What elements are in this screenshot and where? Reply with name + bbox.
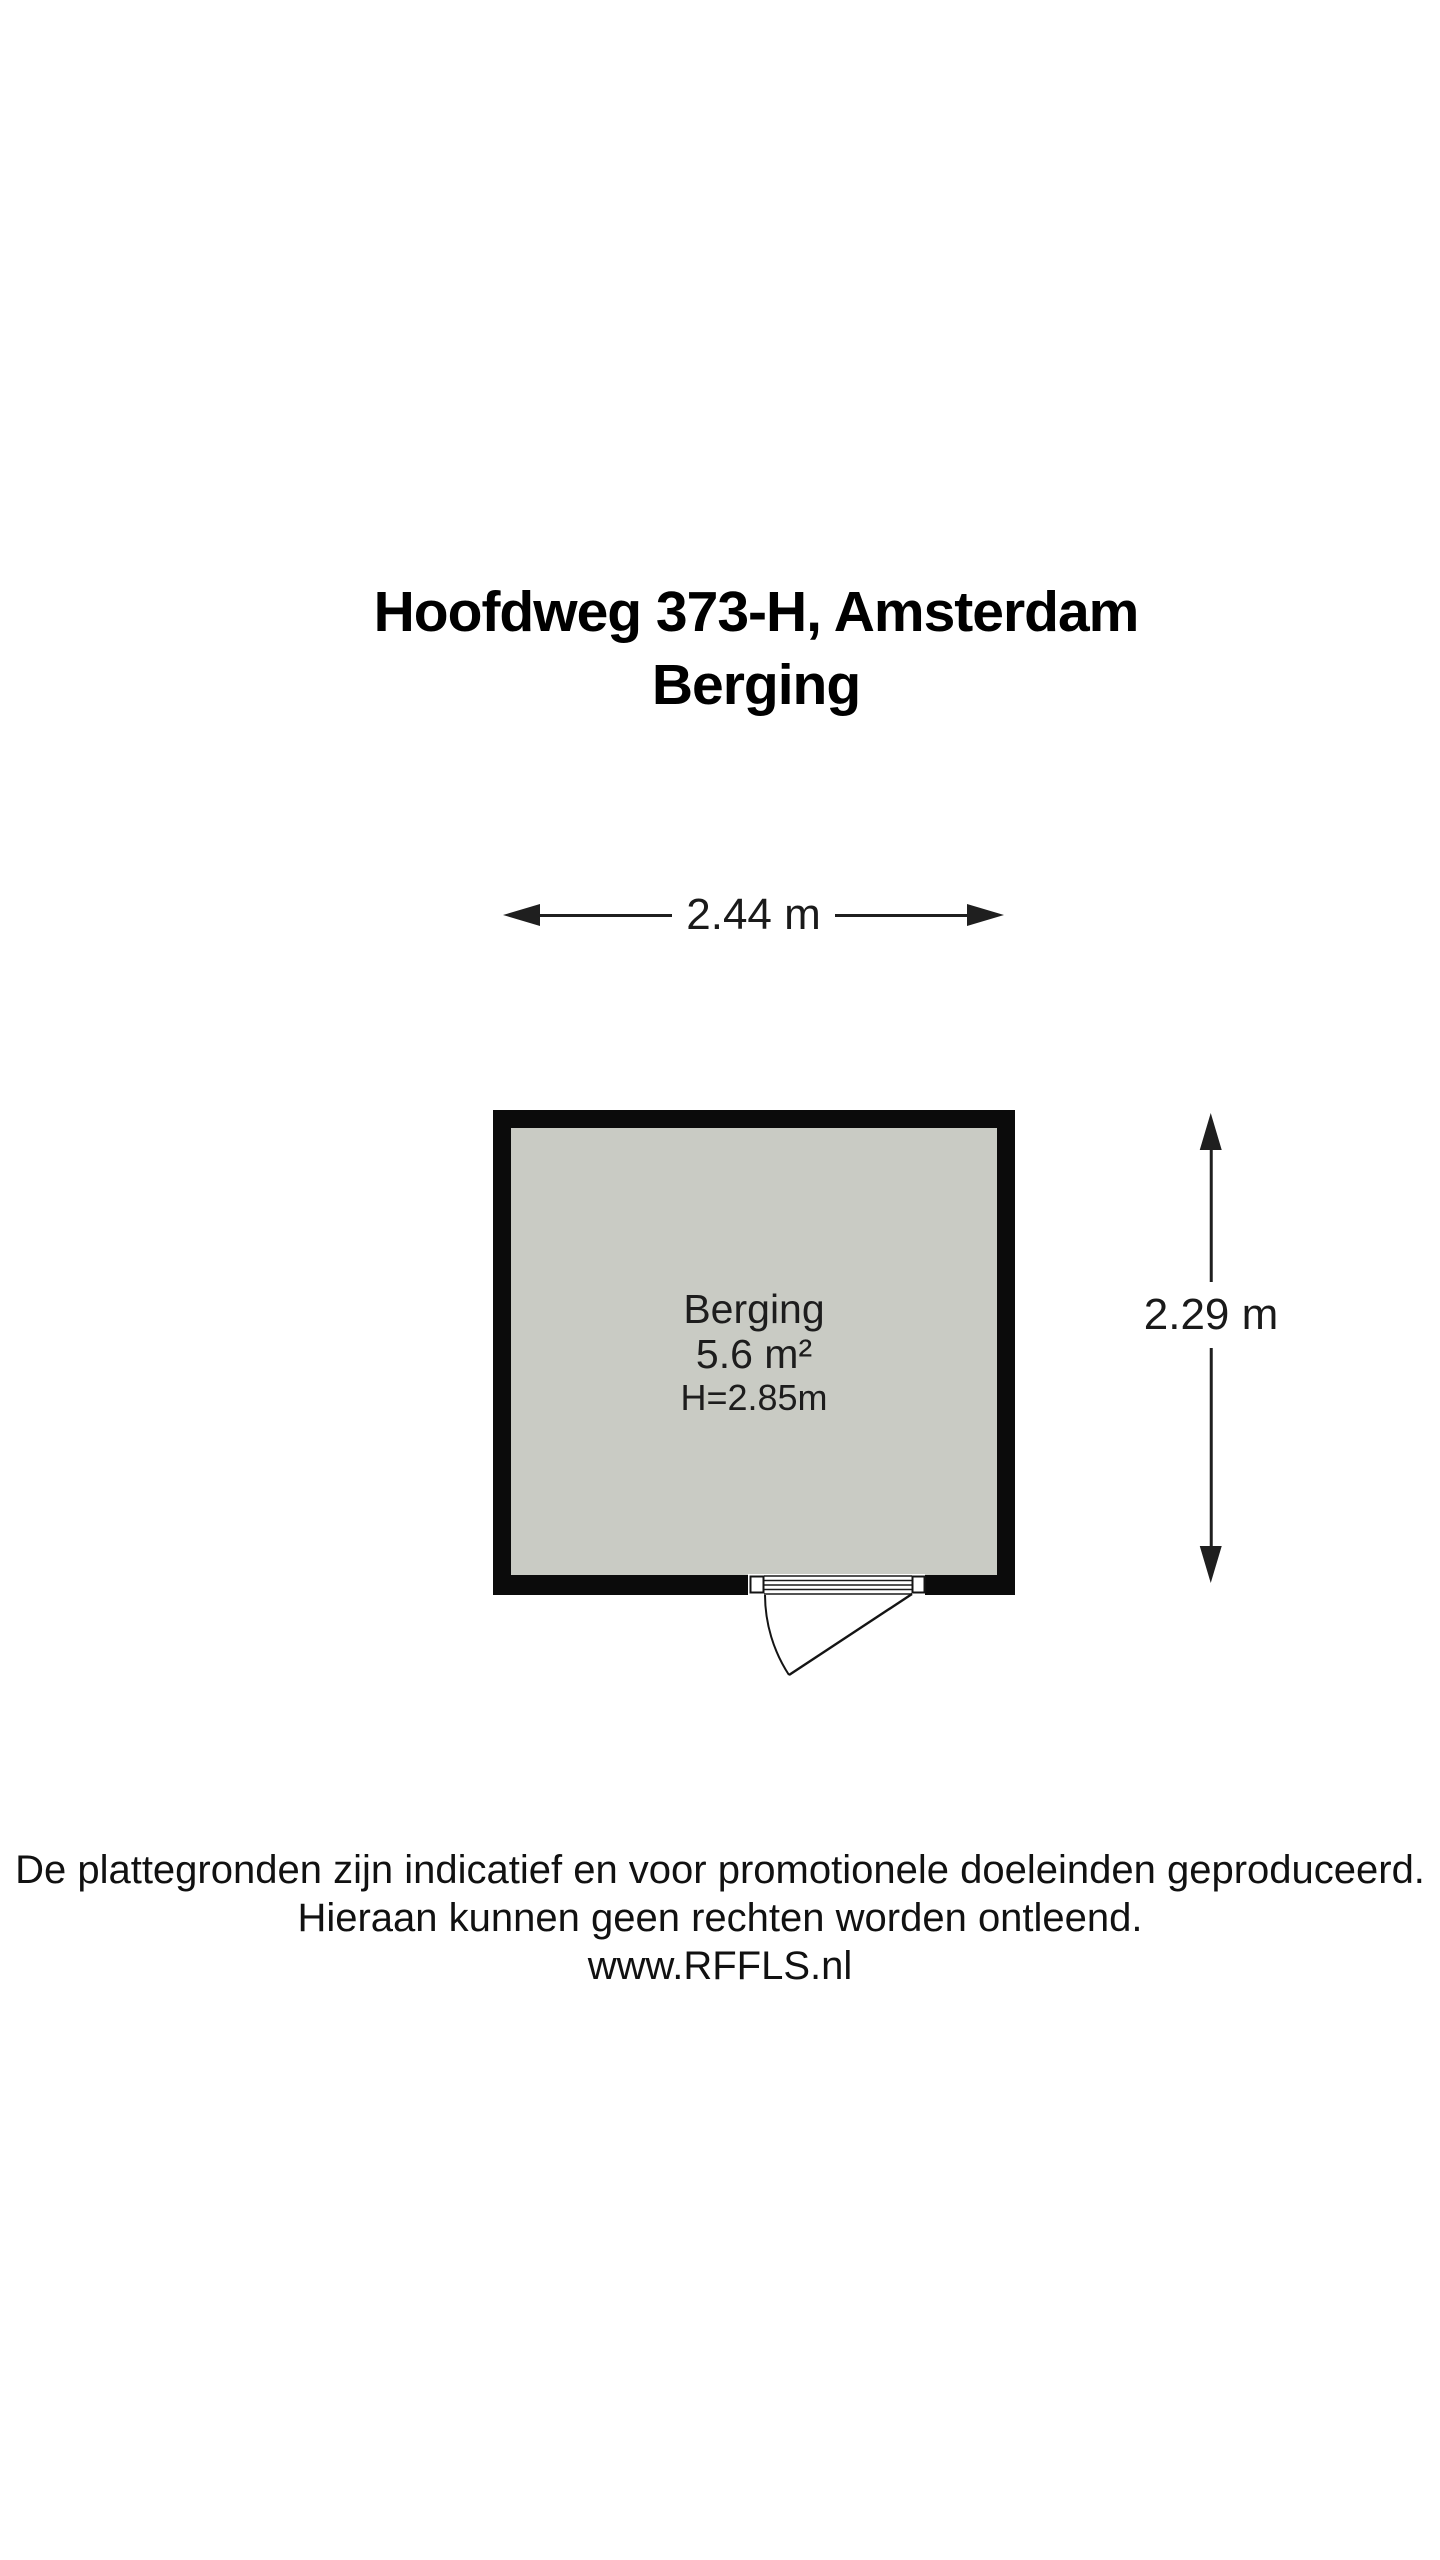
arrow-right-icon (967, 904, 1004, 926)
arrow-left-icon (503, 904, 540, 926)
height-dimension: 2.29 m (1144, 1113, 1279, 1583)
footer: De plattegronden zijn indicatief en voor… (0, 1846, 1440, 1990)
footer-disclaimer-line1: De plattegronden zijn indicatief en voor… (0, 1846, 1440, 1894)
door-right-post (913, 1577, 925, 1593)
door-swing-arc (765, 1595, 789, 1675)
room-ceiling-height-label: H=2.85m (680, 1376, 827, 1420)
width-dimension-label: 2.44 m (672, 890, 835, 940)
footer-website: www.RFFLS.nl (0, 1942, 1440, 1990)
page-title-line1: Hoofdweg 373-H, Amsterdam (374, 576, 1139, 649)
arrow-up-icon (1200, 1113, 1222, 1150)
dimension-line-left (540, 914, 672, 917)
room-area-label: 5.6 m² (680, 1332, 827, 1376)
floorplan-page: Hoofdweg 373-H, Amsterdam Berging 2.44 m (0, 0, 1440, 2560)
width-dimension: 2.44 m (503, 892, 1004, 938)
arrow-down-icon (1200, 1546, 1222, 1583)
page-title-line2: Berging (374, 649, 1139, 722)
dimension-line-top (1209, 1150, 1212, 1282)
footer-disclaimer-line2: Hieraan kunnen geen rechten worden ontle… (0, 1894, 1440, 1942)
room-labels: Berging 5.6 m² H=2.85m (680, 1286, 827, 1420)
room-name-label: Berging (680, 1286, 827, 1332)
page-title: Hoofdweg 373-H, Amsterdam Berging (374, 576, 1139, 722)
door-leaf (789, 1594, 912, 1675)
dimension-line-bottom (1209, 1348, 1212, 1546)
dimension-line-right (835, 914, 967, 917)
door-left-post (751, 1577, 764, 1593)
height-dimension-label: 2.29 m (1144, 1282, 1279, 1348)
